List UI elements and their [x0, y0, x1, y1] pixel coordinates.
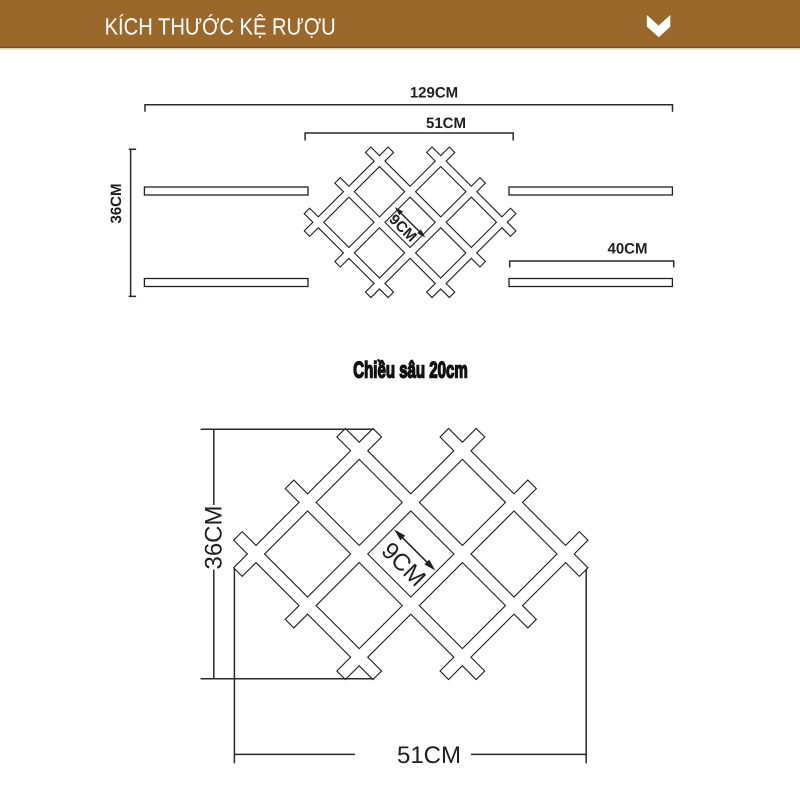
svg-text:36CM: 36CM — [201, 505, 228, 569]
svg-text:51CM: 51CM — [426, 115, 466, 132]
svg-text:40CM: 40CM — [607, 241, 647, 258]
svg-text:129CM: 129CM — [410, 85, 458, 102]
svg-text:Chiều sâu 20cm: Chiều sâu 20cm — [353, 356, 468, 382]
svg-text:51CM: 51CM — [397, 742, 461, 769]
svg-text:KÍCH THƯỚC KỆ RƯỢU: KÍCH THƯỚC KỆ RƯỢU — [105, 14, 336, 40]
svg-text:36CM: 36CM — [108, 183, 125, 223]
